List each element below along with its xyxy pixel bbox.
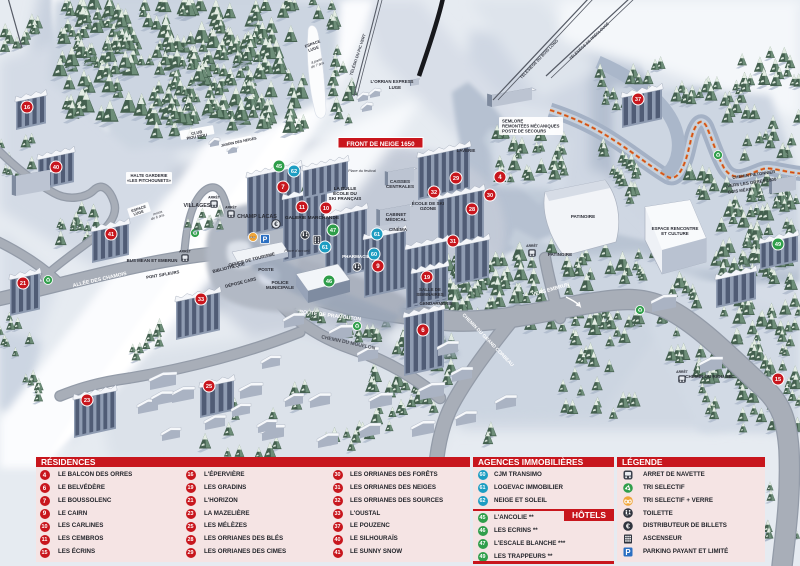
svg-text:21: 21 [20,281,26,287]
svg-text:37: 37 [635,97,641,103]
svg-text:PATINOIRE: PATINOIRE [548,252,572,257]
svg-text:PHARMACIE: PHARMACIE [342,254,370,259]
svg-text:4: 4 [498,174,502,181]
svg-text:16: 16 [24,105,30,111]
svg-text:OZONE: OZONE [420,206,436,211]
svg-text:MÉDICAL: MÉDICAL [386,215,407,222]
svg-text:GENDARMERIE: GENDARMERIE [420,301,453,306]
svg-text:61: 61 [374,232,380,238]
svg-text:ARRÊT: ARRÊT [526,243,539,248]
svg-text:ET CULTURE: ET CULTURE [661,231,689,236]
svg-text:«LES PITCHOUNETS»: «LES PITCHOUNETS» [127,178,172,183]
svg-text:Place d'accueil: Place d'accueil [284,249,309,253]
svg-text:VILLAGES: VILLAGES [184,203,211,209]
svg-text:MUNICIPALE: MUNICIPALE [266,285,294,290]
svg-text:POSTE DE SECOURS: POSTE DE SECOURS [502,129,546,134]
svg-text:FRONT DE NEIGE 1650: FRONT DE NEIGE 1650 [346,141,415,148]
svg-text:€: € [626,524,630,531]
svg-text:45: 45 [276,164,282,170]
svg-text:32: 32 [431,190,437,196]
svg-text:10: 10 [323,206,329,212]
svg-text:SKI FRANÇAIS: SKI FRANÇAIS [329,196,362,201]
svg-text:♻: ♻ [354,323,359,330]
svg-text:6: 6 [421,327,425,334]
svg-text:41: 41 [108,232,114,238]
svg-text:ARRÊT: ARRÊT [676,369,689,374]
svg-text:49: 49 [775,242,781,248]
svg-text:LUGE: LUGE [389,85,401,90]
svg-text:29: 29 [453,176,459,182]
svg-text:POSTE: POSTE [258,267,274,272]
svg-text:7: 7 [281,184,285,191]
svg-text:♻: ♻ [715,152,720,159]
svg-text:40: 40 [53,165,59,171]
svg-text:ARRÊT: ARRÊT [208,195,221,200]
svg-text:GALERIE MARCHANDE: GALERIE MARCHANDE [285,215,340,221]
svg-text:👓: 👓 [250,235,256,241]
svg-text:CHEMIN DU RIOU SEC: CHEMIN DU RIOU SEC [685,374,735,379]
svg-text:61: 61 [322,245,328,251]
svg-text:11: 11 [299,205,305,211]
svg-text:LAVERIE: LAVERIE [457,148,476,153]
svg-text:19: 19 [424,275,430,281]
svg-text:L'ORRIAN EXPRESS: L'ORRIAN EXPRESS [370,79,413,84]
svg-text:CHAMP LACAS: CHAMP LACAS [237,214,277,220]
svg-text:31: 31 [450,239,456,245]
svg-text:ÉCOLE DU: ÉCOLE DU [333,189,357,196]
svg-text:23: 23 [84,398,90,404]
svg-text:PATINOIRE: PATINOIRE [571,214,595,219]
svg-text:60: 60 [371,252,377,258]
svg-text:♻: ♻ [45,277,50,284]
svg-text:46: 46 [326,279,332,285]
svg-text:47: 47 [330,228,336,234]
svg-text:33: 33 [198,297,204,303]
svg-text:SÉMINAIRES: SÉMINAIRES [416,292,443,297]
svg-text:CINÉMA: CINÉMA [389,225,408,232]
svg-text:25: 25 [206,384,212,390]
svg-text:62: 62 [291,169,297,175]
svg-text:ARRÊT: ARRÊT [225,205,238,210]
svg-text:15: 15 [775,377,781,383]
svg-text:30: 30 [487,193,493,199]
svg-text:€: € [274,221,278,228]
svg-text:9: 9 [376,263,380,270]
svg-text:CENTRALES: CENTRALES [386,184,414,189]
svg-text:Place du festival: Place du festival [348,169,376,173]
svg-text:ÉCOLE DE SKI: ÉCOLE DE SKI [412,199,444,206]
svg-text:P: P [263,237,268,244]
svg-text:♻: ♻ [637,307,642,314]
svg-text:ARRÊT: ARRÊT [179,249,192,254]
svg-text:BUS MEAN ET EMBRUN: BUS MEAN ET EMBRUN [127,258,178,263]
svg-text:P: P [625,548,630,557]
svg-text:28: 28 [469,207,475,213]
